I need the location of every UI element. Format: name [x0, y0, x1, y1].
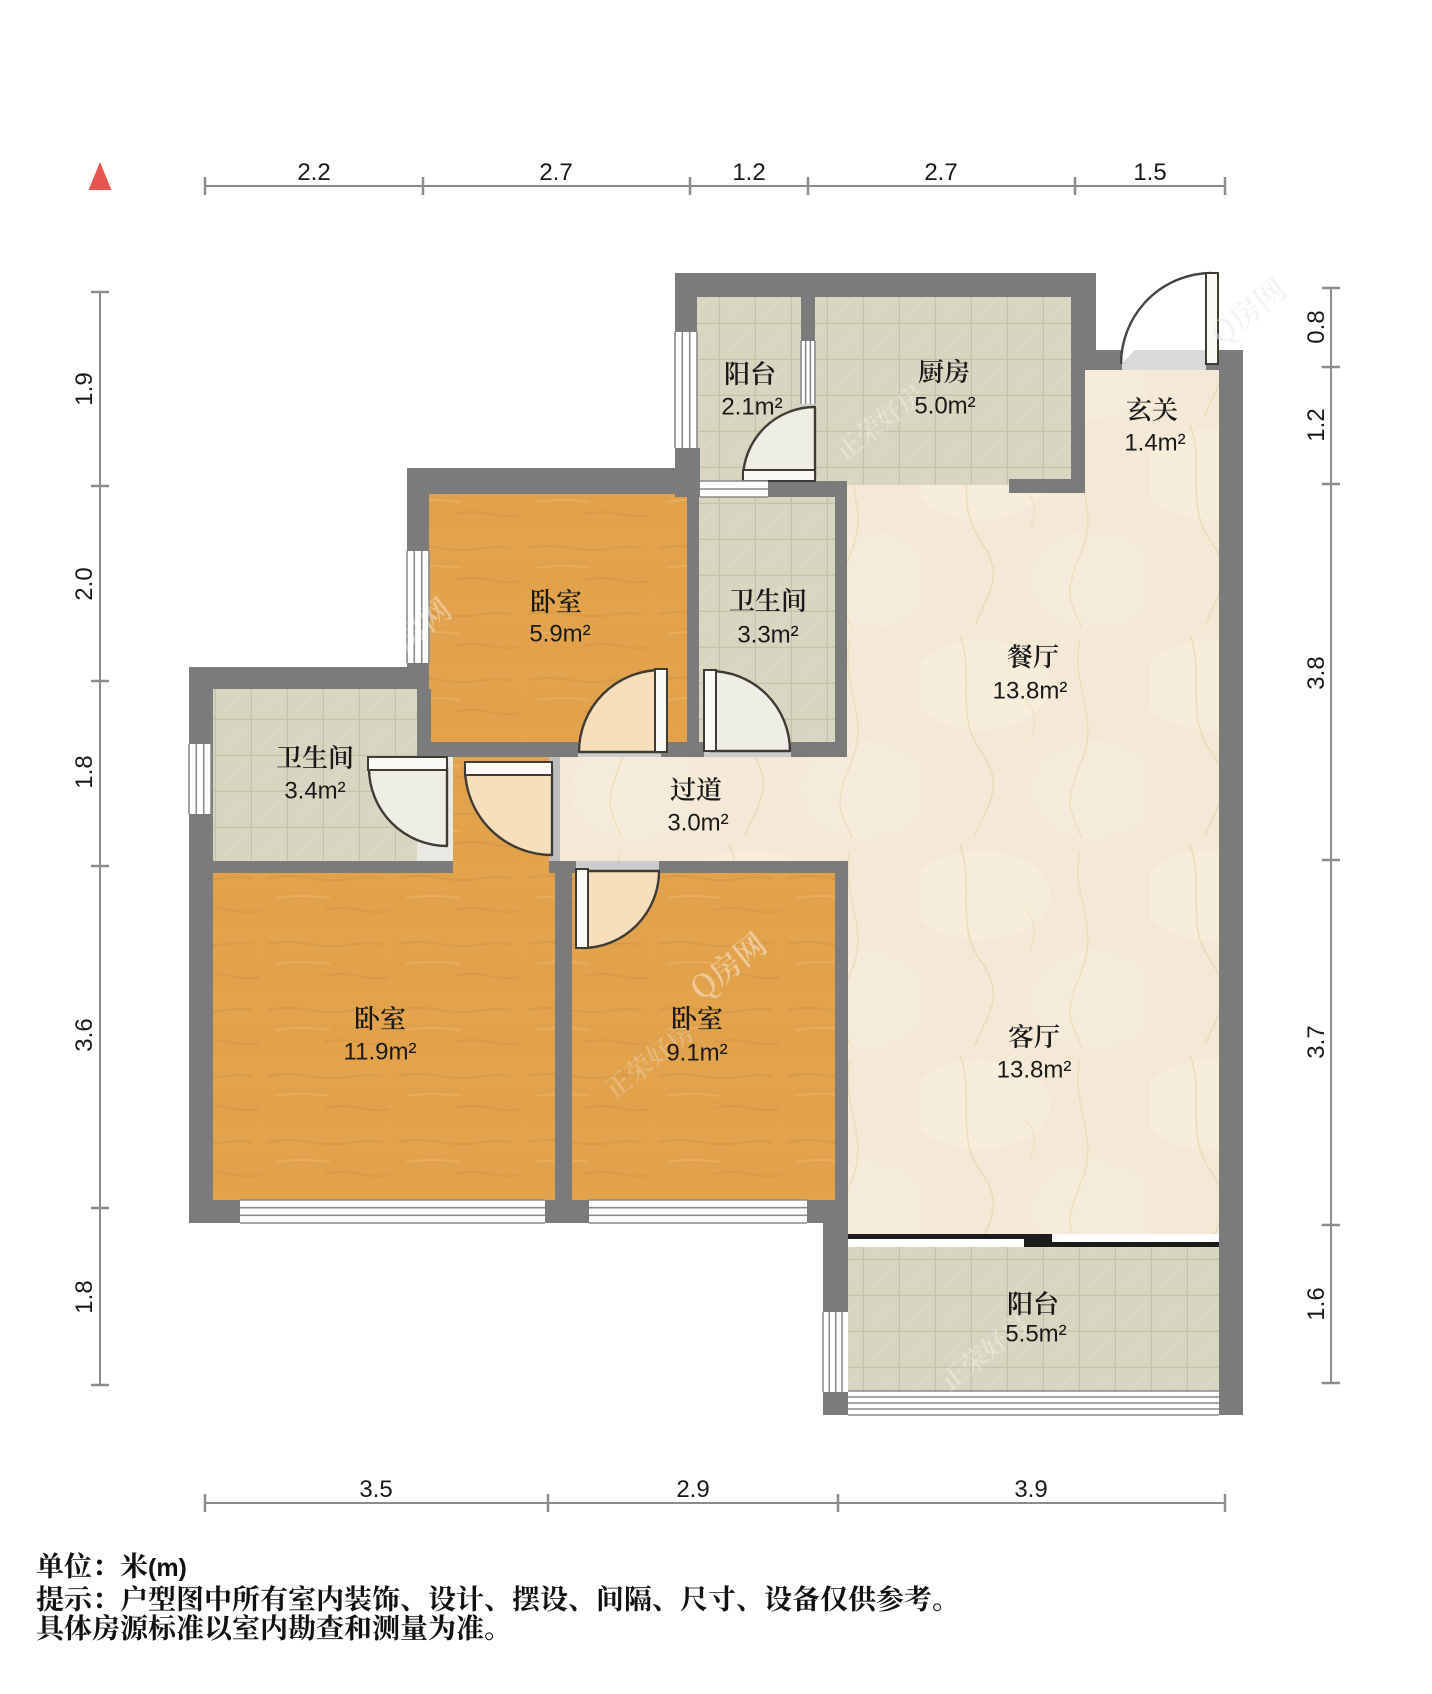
svg-text:9.1m²: 9.1m²: [666, 1040, 727, 1067]
svg-text:(m): (m): [148, 1554, 187, 1582]
svg-text:0.8: 0.8: [1303, 310, 1330, 343]
svg-text:1.8: 1.8: [71, 1280, 98, 1313]
svg-text:1.8: 1.8: [71, 755, 98, 788]
svg-text:3.5: 3.5: [359, 1476, 392, 1503]
svg-text:3.8: 3.8: [1303, 656, 1330, 689]
svg-text:1.5: 1.5: [1133, 159, 1166, 186]
svg-text:3.9: 3.9: [1014, 1476, 1047, 1503]
svg-text:3.7: 3.7: [1303, 1025, 1330, 1058]
svg-text:2.2: 2.2: [297, 159, 330, 186]
svg-text:3.4m²: 3.4m²: [284, 778, 345, 805]
svg-text:11.9m²: 11.9m²: [344, 1039, 417, 1066]
svg-text:3.3m²: 3.3m²: [737, 622, 798, 649]
svg-text:2.1m²: 2.1m²: [721, 394, 782, 421]
svg-text:3.6: 3.6: [71, 1018, 98, 1051]
svg-text:2.9: 2.9: [676, 1476, 709, 1503]
svg-text:2.0: 2.0: [71, 567, 98, 600]
svg-text:1.2: 1.2: [1303, 408, 1330, 441]
svg-text:2.7: 2.7: [539, 159, 572, 186]
svg-text:5.5m²: 5.5m²: [1005, 1321, 1066, 1348]
svg-text:1.4m²: 1.4m²: [1124, 430, 1185, 457]
svg-text:2.7: 2.7: [924, 159, 957, 186]
svg-text:5.9m²: 5.9m²: [529, 621, 590, 648]
svg-text:1.2: 1.2: [732, 159, 765, 186]
svg-text:1.9: 1.9: [71, 372, 98, 405]
svg-text:5.0m²: 5.0m²: [914, 393, 975, 420]
svg-text:3.0m²: 3.0m²: [667, 810, 728, 837]
svg-text:13.8m²: 13.8m²: [993, 678, 1068, 705]
svg-text:1.6: 1.6: [1303, 1287, 1330, 1320]
svg-text:13.8m²: 13.8m²: [997, 1057, 1072, 1084]
